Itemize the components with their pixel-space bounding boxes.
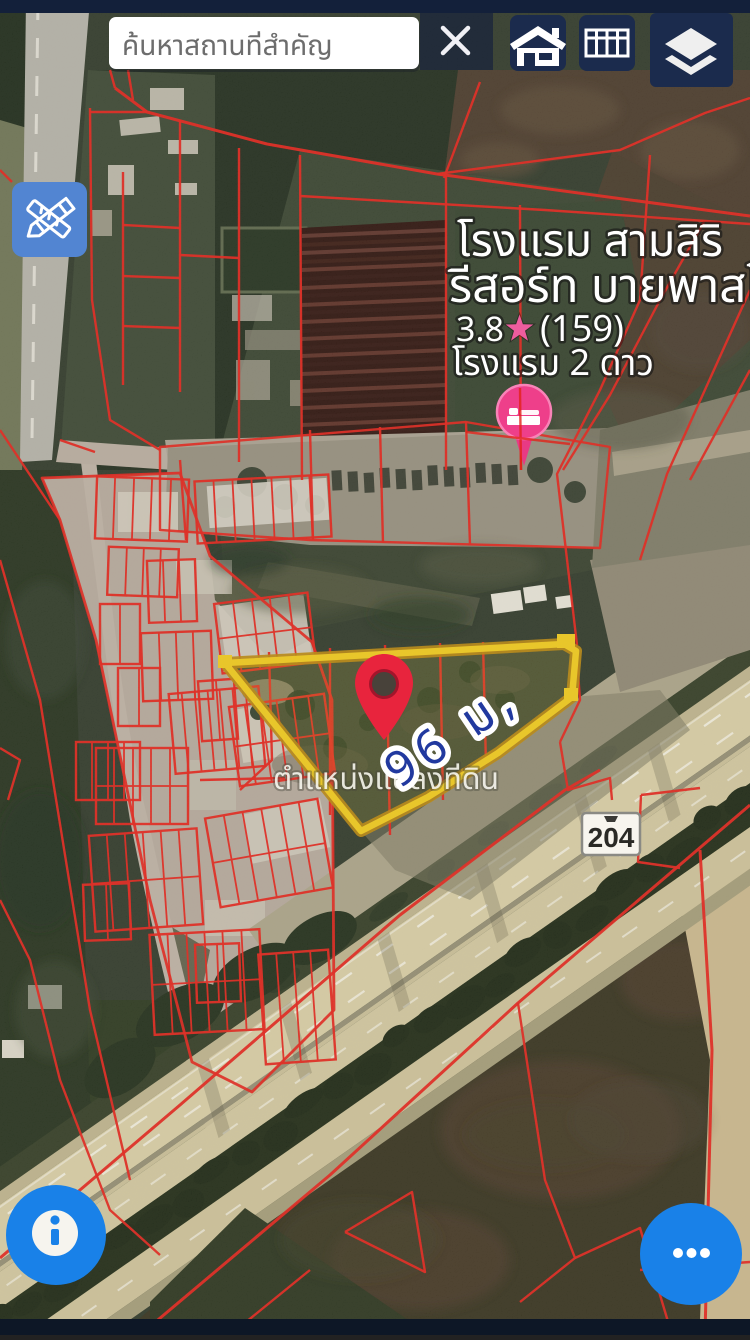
svg-text:204: 204 (588, 822, 635, 853)
